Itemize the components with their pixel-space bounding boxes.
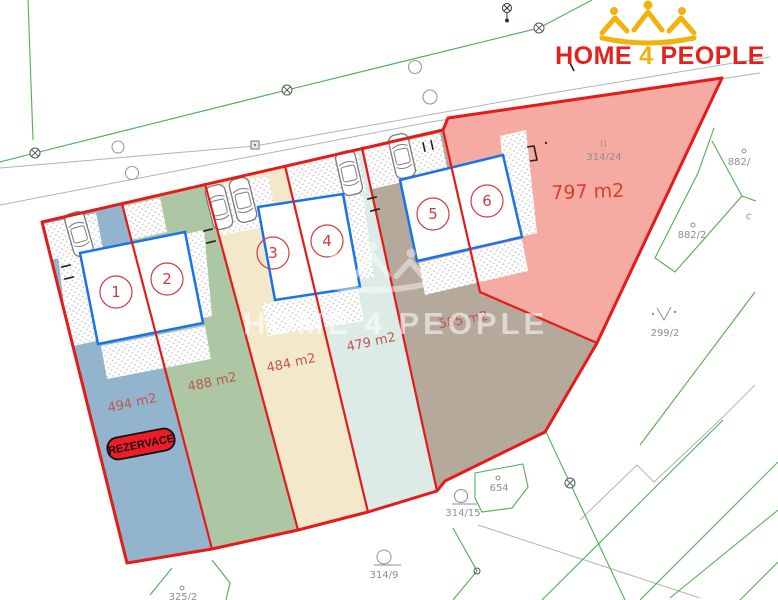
house-1-2 [80,232,203,344]
parcel-label-882: 882/ [728,157,751,168]
logo-word-4: 4 [639,42,653,70]
parcel-label-654: 654 [489,483,508,494]
watermark-text: HOME 4 PEOPLE [243,306,548,341]
manhole-icon [423,90,437,104]
manhole-icon [409,61,422,74]
parcel-label-314-9: 314/9 [370,570,399,581]
logo-text: HOME4PEOPLE [555,42,765,70]
parcel-label-314-15: 314/15 [445,508,480,519]
survey-point-icon [565,478,575,488]
survey-point-icon [30,148,40,158]
parcel-culture-mark: II [600,140,607,150]
logo-word-people: PEOPLE [660,42,764,70]
area-label-plot-6: 797 m2 [551,180,625,205]
survey-point-icon [282,85,292,95]
site-plan-page: 1 2 3 4 5 6 494 m2 [0,0,778,600]
survey-point-icon [534,23,544,33]
point-dot [545,142,547,144]
plot-1-number: 1 [111,283,121,301]
plot-2-number: 2 [162,270,172,288]
parcel-label-314-24: 314/24 [586,152,621,163]
plot-4-number: 4 [322,232,332,250]
site-plan-map: 1 2 3 4 5 6 494 m2 [0,0,778,600]
utility-box-dot [254,144,256,146]
manhole-icon [112,141,124,153]
manhole-icon [126,167,139,180]
parcel-label-299-2: 299/2 [651,328,680,339]
plot-6-number: 6 [482,192,492,210]
plot-5-number: 5 [428,205,438,223]
logo-word-home: HOME [555,42,632,70]
plot-3-number: 3 [268,244,278,262]
parcel-label-882-2: 882/2 [678,230,707,241]
parcel-label-325-2: 325/2 [169,592,198,600]
